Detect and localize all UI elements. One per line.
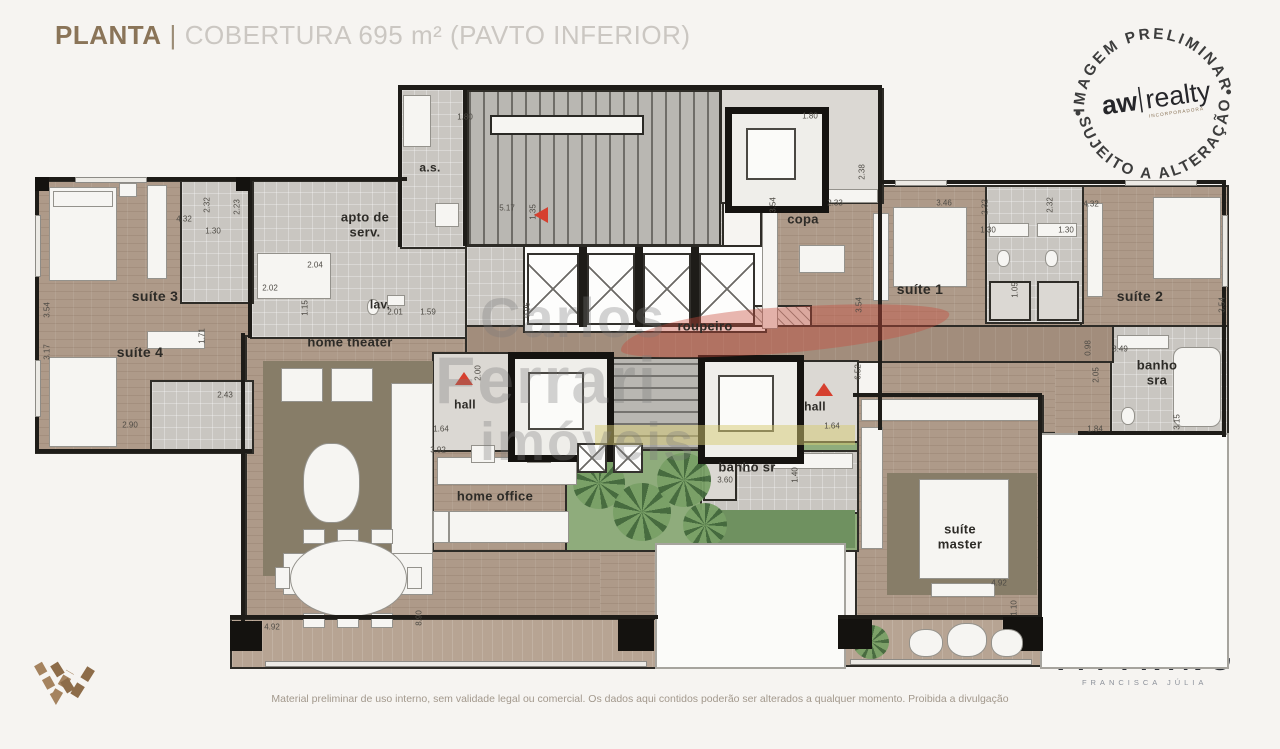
window (1125, 180, 1197, 186)
page-title: PLANTA|COBERTURA 695 m² (PAVTO INFERIOR) (55, 20, 691, 51)
dimension-label: 4.92 (991, 579, 1007, 588)
room-label-suite-3: suíte 3 (132, 289, 178, 305)
hall-right-elevator (698, 355, 804, 464)
laundry-tub (403, 95, 431, 147)
page: { "header": { "title_primary": "PLANTA",… (0, 0, 1280, 749)
window (1222, 215, 1228, 287)
dimension-label: 0.98 (1084, 340, 1093, 356)
dimension-label: 2.02 (262, 284, 278, 293)
developer-monogram-icon (26, 648, 114, 710)
dimension-label: 3.54 (769, 197, 778, 213)
stamp-brand-bold: aw (1100, 86, 1140, 121)
pillar (236, 177, 250, 191)
room-label-hall-right: hall (804, 400, 826, 413)
suite2-wardrobe (1087, 203, 1103, 297)
dimension-label: 2.90 (122, 421, 138, 430)
master-bench (931, 583, 995, 597)
dimension-label: 2.05 (1092, 367, 1101, 383)
room-label-suite-2: suíte 2 (1117, 289, 1163, 305)
vittrino-subtitle: FRANCISCA JÚLIA (1051, 678, 1238, 687)
dimension-label: 2.04 (307, 261, 323, 270)
master-wardrobe-top (861, 399, 1041, 421)
watermark-line-3: imóveis (480, 415, 695, 469)
window (850, 659, 1032, 665)
bath1-toilet (997, 250, 1010, 267)
stamp-brand-divider (1139, 87, 1143, 112)
dimension-label: 1.59 (420, 308, 436, 317)
dimension-label: 3.54 (855, 297, 864, 313)
dimension-label: 1.80 (802, 112, 818, 121)
disclaimer-text: Material preliminar de uso interno, sem … (0, 693, 1280, 705)
dimension-label: 1.64 (824, 422, 840, 431)
dimension-label: 1.10 (1010, 600, 1019, 616)
room-label-banho-sr: banho sr (718, 461, 775, 476)
chaise (303, 443, 360, 523)
dimension-label: 1.64 (433, 425, 449, 434)
dimension-label: 2.32 (1046, 197, 1055, 213)
dimension-label: 2.32 (981, 199, 990, 215)
window (895, 180, 947, 186)
room-label-home-office: home office (457, 490, 533, 505)
room-label-as: a.s. (419, 161, 440, 174)
terrace-stone (947, 623, 987, 657)
room-label-copa: copa (787, 213, 819, 228)
dimension-label: 3.49 (1112, 345, 1128, 354)
dining-chair (303, 529, 325, 544)
dining-table (290, 540, 407, 617)
pillar (230, 621, 262, 651)
room-label-suite-master: suíte master (938, 522, 982, 551)
dining-chair (407, 567, 422, 589)
dimension-label: 2.23 (233, 199, 242, 215)
floor-patch (600, 545, 655, 620)
dimension-label: 4.92 (264, 623, 280, 632)
wall (1038, 393, 1042, 623)
dimension-label: 2.32 (203, 197, 212, 213)
pillar (35, 177, 49, 191)
dimension-label: 1.30 (205, 227, 221, 236)
preliminary-stamp: IMAGEM PRELIMINAR SUJEITO A ALTERAÇÃO aw… (1046, 0, 1260, 205)
copa-table (799, 245, 845, 273)
palm-tree (683, 503, 727, 547)
dining-chair (371, 529, 393, 544)
washing-machine (435, 203, 459, 227)
dimension-label: 1.30 (980, 226, 996, 235)
terrace-stone (909, 629, 943, 657)
room-label-home-theater: home theater (307, 336, 392, 351)
open-void-center (655, 543, 846, 669)
master-wardrobe-left (861, 427, 883, 549)
window (35, 215, 41, 277)
dimension-label: 3.54 (1218, 297, 1227, 313)
armchair (281, 368, 323, 402)
hall-right-elevator-car (718, 375, 774, 432)
dimension-label: 3.17 (43, 344, 52, 360)
title-separator: | (170, 20, 177, 50)
window (75, 177, 147, 183)
staircase-handrail (490, 115, 644, 135)
room-label-lav: lav. (370, 298, 390, 311)
room-label-banho-sra: banho sra (1137, 358, 1178, 387)
bath2-shower (1037, 281, 1079, 321)
terrace-stone (991, 629, 1023, 657)
pillar (838, 619, 872, 649)
room-label-suite-4: suíte 4 (117, 345, 163, 361)
dimension-label: 3.54 (43, 302, 52, 318)
dimension-label: 2.33 (827, 199, 843, 208)
room-label-apto-de-serv: apto de serv. (341, 210, 389, 239)
floor-plan: Carlos Ferrari imóveis suíte 3suíte 4apt… (35, 85, 1225, 665)
room-label-hall-left: hall (454, 398, 476, 411)
dimension-label: 2.38 (858, 164, 867, 180)
bath2-toilet (1045, 250, 1058, 267)
dimension-label: 5.17 (499, 204, 515, 213)
dimension-label: 1.84 (1087, 425, 1103, 434)
floor-suite4-bath (150, 380, 254, 454)
suite3-pillow (53, 191, 113, 207)
dimension-label: 3.92 (430, 446, 446, 455)
dimension-label: 1.30 (1058, 226, 1074, 235)
office-sofa (449, 511, 569, 543)
entry-arrow-lobby (534, 207, 548, 223)
dimension-label: 6.52 (854, 364, 863, 380)
service-elevator-car (746, 128, 796, 180)
suite1-bed (893, 207, 967, 287)
wall (398, 85, 402, 247)
dimension-label: 3.46 (936, 199, 952, 208)
dining-chair (275, 567, 290, 589)
wall (241, 333, 245, 633)
suite4-bed (49, 357, 117, 447)
floor-suite3-bath (180, 180, 254, 304)
armchair (331, 368, 373, 402)
dimension-label: 1.71 (198, 328, 207, 344)
dimension-label: 1.05 (1011, 282, 1020, 298)
office-side-seat (433, 511, 449, 543)
title-secondary: COBERTURA 695 m² (PAVTO INFERIOR) (185, 20, 691, 50)
suite2-bed (1153, 197, 1221, 279)
window (265, 661, 647, 667)
dimension-label: 2.43 (217, 391, 233, 400)
dimension-label: 1.80 (457, 113, 473, 122)
room-label-suite-1: suíte 1 (897, 282, 943, 298)
wall (398, 85, 882, 90)
suite3-nightstand (119, 183, 137, 197)
open-void-right (1040, 433, 1229, 669)
watermark-line-1: Carlos (480, 290, 666, 346)
pillar (618, 619, 654, 651)
dimension-label: 1.15 (301, 300, 310, 316)
dimension-label: 4.32 (176, 215, 192, 224)
title-primary: PLANTA (55, 20, 162, 50)
wall (35, 449, 252, 453)
entry-arrow-hall-right (815, 383, 833, 396)
suite3-wardrobe (147, 185, 167, 279)
banho-sra-toilet (1121, 407, 1135, 425)
room-label-roupeiro: roupeiro (677, 320, 732, 335)
dimension-label: 8.90 (415, 610, 424, 626)
wall (230, 615, 658, 619)
dimension-label: 3.60 (717, 476, 733, 485)
dimension-label: 1.40 (791, 467, 800, 483)
main-staircase (467, 90, 721, 246)
wall (248, 178, 252, 338)
elevator-separator (691, 247, 699, 327)
dimension-label: 4.32 (1083, 200, 1099, 209)
window (35, 360, 41, 417)
dimension-label: 3.15 (1173, 414, 1182, 430)
